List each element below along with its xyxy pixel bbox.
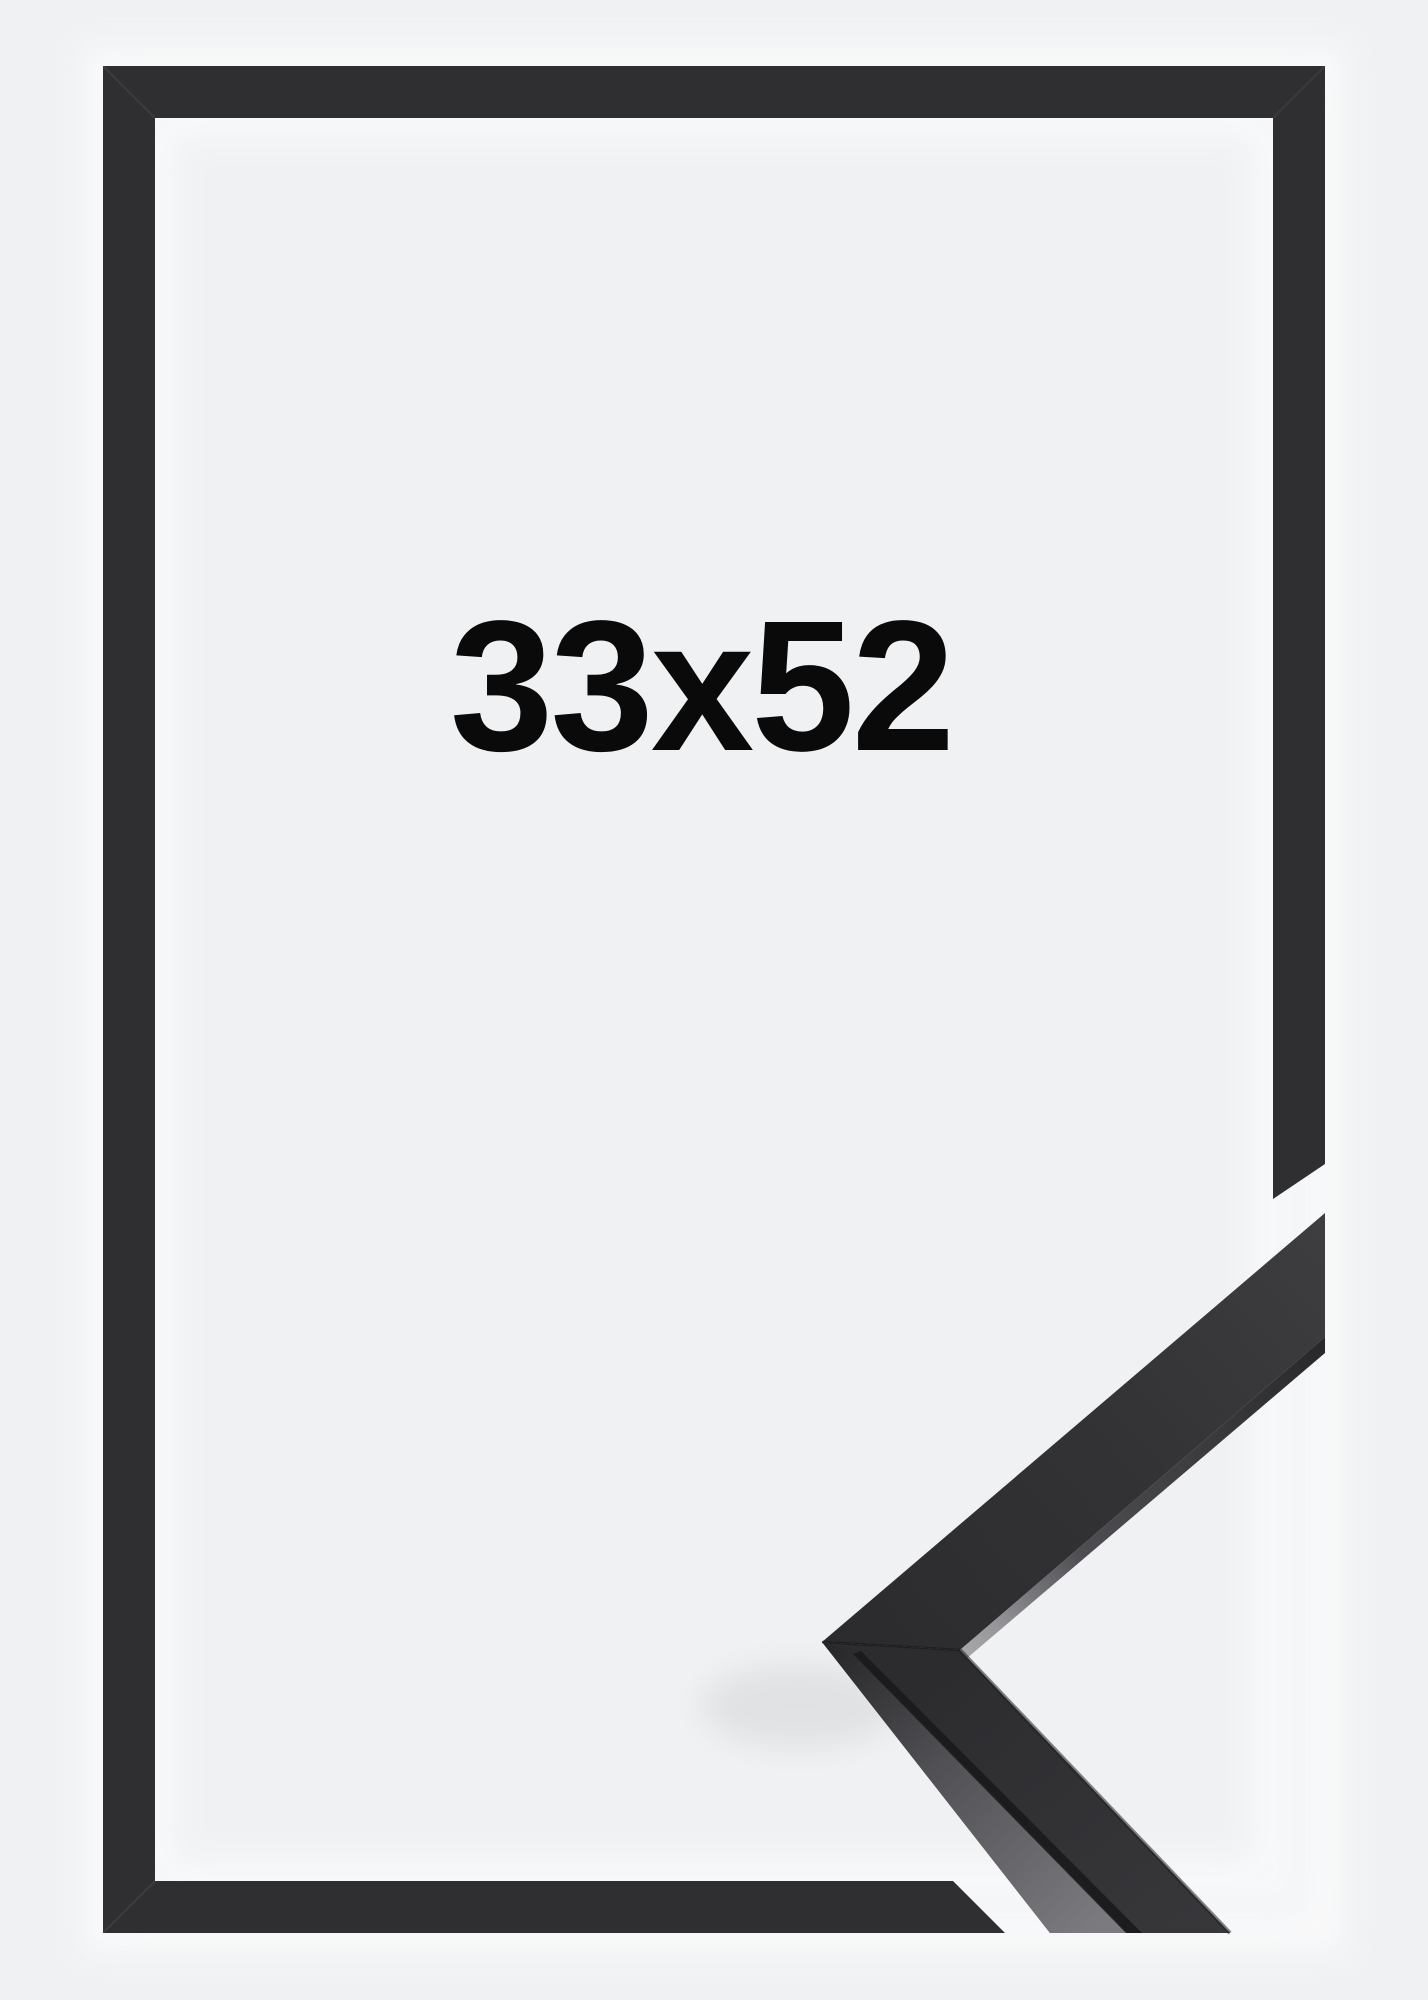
frame-size-label: 33x52 (0, 594, 1402, 780)
corner-sample-upper-arm (822, 1213, 1325, 1650)
frame-outer-halo (103, 66, 1325, 1933)
frame-interior-halo (155, 118, 1273, 1881)
product-image: 33x52 (0, 0, 1428, 2000)
flat-frame-border (103, 66, 1325, 1933)
frame-illustration (0, 0, 1428, 2000)
